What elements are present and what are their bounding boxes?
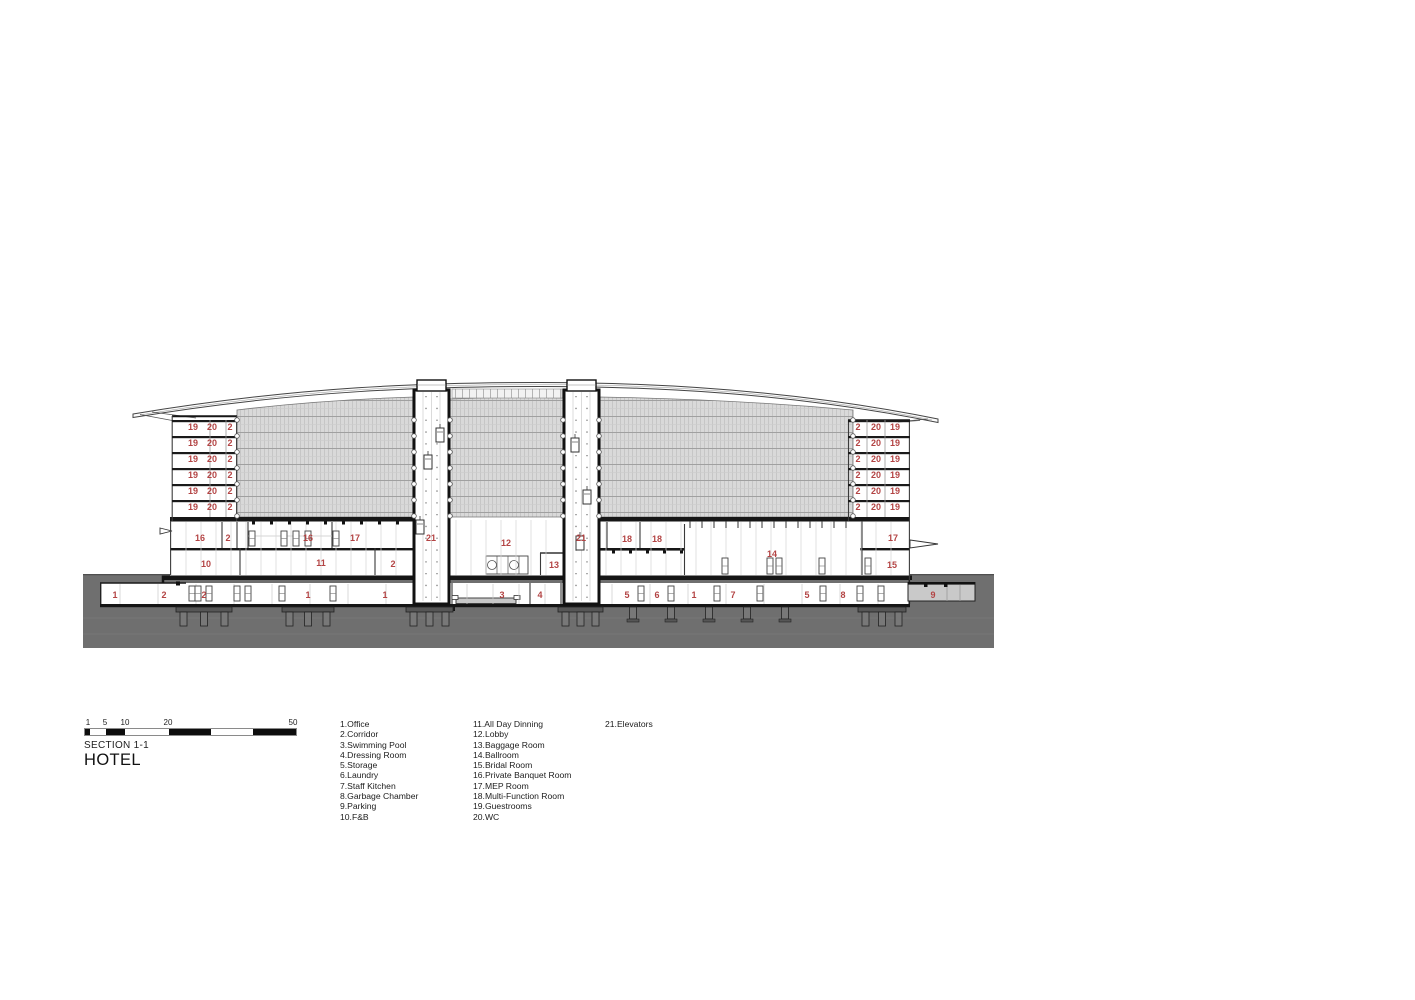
- room-number-label: 5: [804, 590, 809, 600]
- room-number-label: 20: [207, 422, 217, 432]
- legend-item: 3.Swimming Pool: [340, 740, 418, 750]
- room-number-label: 6: [654, 590, 659, 600]
- curtainwall-panels: [237, 389, 853, 517]
- room-number-label: 1: [305, 590, 310, 600]
- room-number-label: 16: [195, 533, 205, 543]
- room-number-label: 19: [890, 422, 900, 432]
- legend-item: 10.F&B: [340, 812, 418, 822]
- scalebar-segment: [106, 729, 125, 735]
- legend-item: 5.Storage: [340, 760, 418, 770]
- room-number-label: 2: [161, 590, 166, 600]
- sheet: 1920219202192021920219202192022201922019…: [0, 0, 1415, 1000]
- room-number-label: 17: [350, 533, 360, 543]
- section-drawing: 1920219202192021920219202192022201922019…: [0, 0, 1415, 1000]
- room-number-label: 2: [855, 454, 860, 464]
- legend-item: 18.Multi-Function Room: [473, 791, 571, 801]
- room-number-label: 19: [188, 438, 198, 448]
- legend-item: 12.Lobby: [473, 729, 571, 739]
- page-title: HOTEL: [84, 751, 141, 770]
- room-number-label: 2: [227, 454, 232, 464]
- legend-item: 17.MEP Room: [473, 781, 571, 791]
- room-number-label: 1: [691, 590, 696, 600]
- room-number-label: 1: [382, 590, 387, 600]
- parking-annex: [908, 582, 975, 601]
- legend-item: 4.Dressing Room: [340, 750, 418, 760]
- legend-item: 14.Ballroom: [473, 750, 571, 760]
- legend-column-3: 21.Elevators: [605, 719, 653, 729]
- room-number-label: 2: [227, 470, 232, 480]
- room-number-label: 20: [871, 502, 881, 512]
- room-number-label: 17: [888, 533, 898, 543]
- room-number-label: 12: [501, 538, 511, 548]
- room-number-label: 2: [855, 438, 860, 448]
- room-number-label: 2: [201, 590, 206, 600]
- room-number-label: 2: [390, 559, 395, 569]
- legend-item: 16.Private Banquet Room: [473, 770, 571, 780]
- scalebar-segment: [169, 729, 211, 735]
- room-number-label: 16: [303, 533, 313, 543]
- room-number-label: 11: [316, 558, 326, 568]
- room-number-label: 19: [188, 470, 198, 480]
- room-number-label: 18: [652, 534, 662, 544]
- legend-column-1: 1.Office2.Corridor3.Swimming Pool4.Dress…: [340, 719, 418, 822]
- room-number-label: 2: [227, 486, 232, 496]
- room-number-label: 20: [871, 422, 881, 432]
- room-number-label: 20: [207, 438, 217, 448]
- room-number-label: 19: [188, 454, 198, 464]
- room-number-label: 2: [855, 486, 860, 496]
- legend-item: 11.All Day Dinning: [473, 719, 571, 729]
- legend-item: 9.Parking: [340, 801, 418, 811]
- room-number-label: 7: [730, 590, 735, 600]
- room-number-label: 3: [499, 590, 504, 600]
- legend-item: 8.Garbage Chamber: [340, 791, 418, 801]
- room-number-label: 19: [890, 486, 900, 496]
- legend-item: 2.Corridor: [340, 729, 418, 739]
- room-number-label: 2: [227, 502, 232, 512]
- room-number-label: 2: [227, 422, 232, 432]
- section-title: SECTION 1-1: [84, 740, 149, 751]
- room-number-label: 18: [622, 534, 632, 544]
- room-number-label: 19: [890, 454, 900, 464]
- room-number-label: 19: [890, 502, 900, 512]
- room-number-label: 20: [871, 438, 881, 448]
- room-number-label: 19: [890, 438, 900, 448]
- scalebar-tick: 50: [289, 718, 298, 727]
- room-number-label: 2: [855, 470, 860, 480]
- legend-item: 15.Bridal Room: [473, 760, 571, 770]
- legend-item: 20.WC: [473, 812, 571, 822]
- room-number-label: 14: [767, 549, 777, 559]
- scalebar-tick: 1: [86, 718, 90, 727]
- room-number-label: 21: [576, 533, 586, 543]
- room-number-label: 20: [871, 454, 881, 464]
- scalebar-segment: [253, 729, 296, 735]
- room-number-label: 19: [890, 470, 900, 480]
- room-number-label: 2: [227, 438, 232, 448]
- room-number-label: 2: [225, 533, 230, 543]
- legend-item: 13.Baggage Room: [473, 740, 571, 750]
- scalebar-ticks: 1 5 10 20 50: [84, 718, 295, 727]
- room-number-label: 4: [537, 590, 542, 600]
- room-number-label: 20: [207, 470, 217, 480]
- legend-item: 21.Elevators: [605, 719, 653, 729]
- room-number-label: 20: [207, 486, 217, 496]
- room-number-label: 19: [188, 502, 198, 512]
- room-number-label: 20: [871, 470, 881, 480]
- scalebar-tick: 5: [103, 718, 107, 727]
- room-number-label: 19: [188, 486, 198, 496]
- scalebar-tick: 10: [121, 718, 130, 727]
- room-number-label: 19: [188, 422, 198, 432]
- room-number-label: 2: [855, 502, 860, 512]
- scale-bar: [84, 728, 297, 736]
- room-number-label: 20: [207, 502, 217, 512]
- room-number-label: 1: [112, 590, 117, 600]
- scalebar-segment: [85, 729, 90, 735]
- room-number-label: 13: [549, 560, 559, 570]
- room-number-label: 20: [207, 454, 217, 464]
- legend-item: 1.Office: [340, 719, 418, 729]
- legend-column-2: 11.All Day Dinning12.Lobby13.Baggage Roo…: [473, 719, 571, 822]
- legend-item: 19.Guestrooms: [473, 801, 571, 811]
- room-number-label: 21: [426, 533, 436, 543]
- room-number-label: 9: [930, 590, 935, 600]
- room-number-label: 10: [201, 559, 211, 569]
- room-number-label: 20: [871, 486, 881, 496]
- room-number-label: 15: [887, 560, 897, 570]
- legend-item: 7.Staff Kitchen: [340, 781, 418, 791]
- basement: [100, 580, 910, 611]
- room-number-label: 2: [855, 422, 860, 432]
- scalebar-tick: 20: [164, 718, 173, 727]
- room-number-label: 8: [840, 590, 845, 600]
- room-number-label: 5: [624, 590, 629, 600]
- legend-item: 6.Laundry: [340, 770, 418, 780]
- lobby-entrance: [486, 556, 528, 574]
